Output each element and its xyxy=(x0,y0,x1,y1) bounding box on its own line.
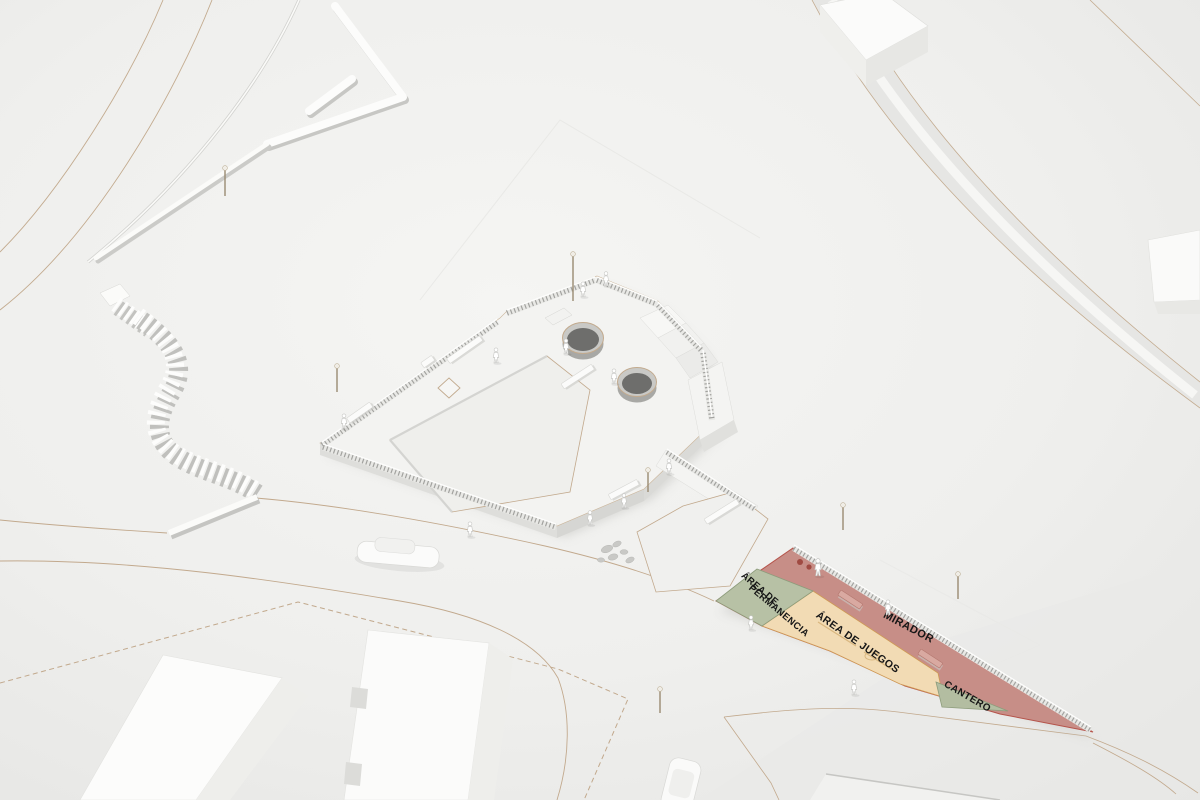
architectural-site-render: ÁREA DE PERMANENCIA ÁREA DE JUEGOS MIRAD… xyxy=(0,0,1200,800)
circular-opening xyxy=(618,368,657,403)
site-model-canvas: ÁREA DE PERMANENCIA ÁREA DE JUEGOS MIRAD… xyxy=(0,0,1200,800)
building-block xyxy=(344,630,513,800)
planter-dot xyxy=(806,564,811,569)
planter-dot xyxy=(797,559,803,565)
building-block xyxy=(1148,230,1200,314)
